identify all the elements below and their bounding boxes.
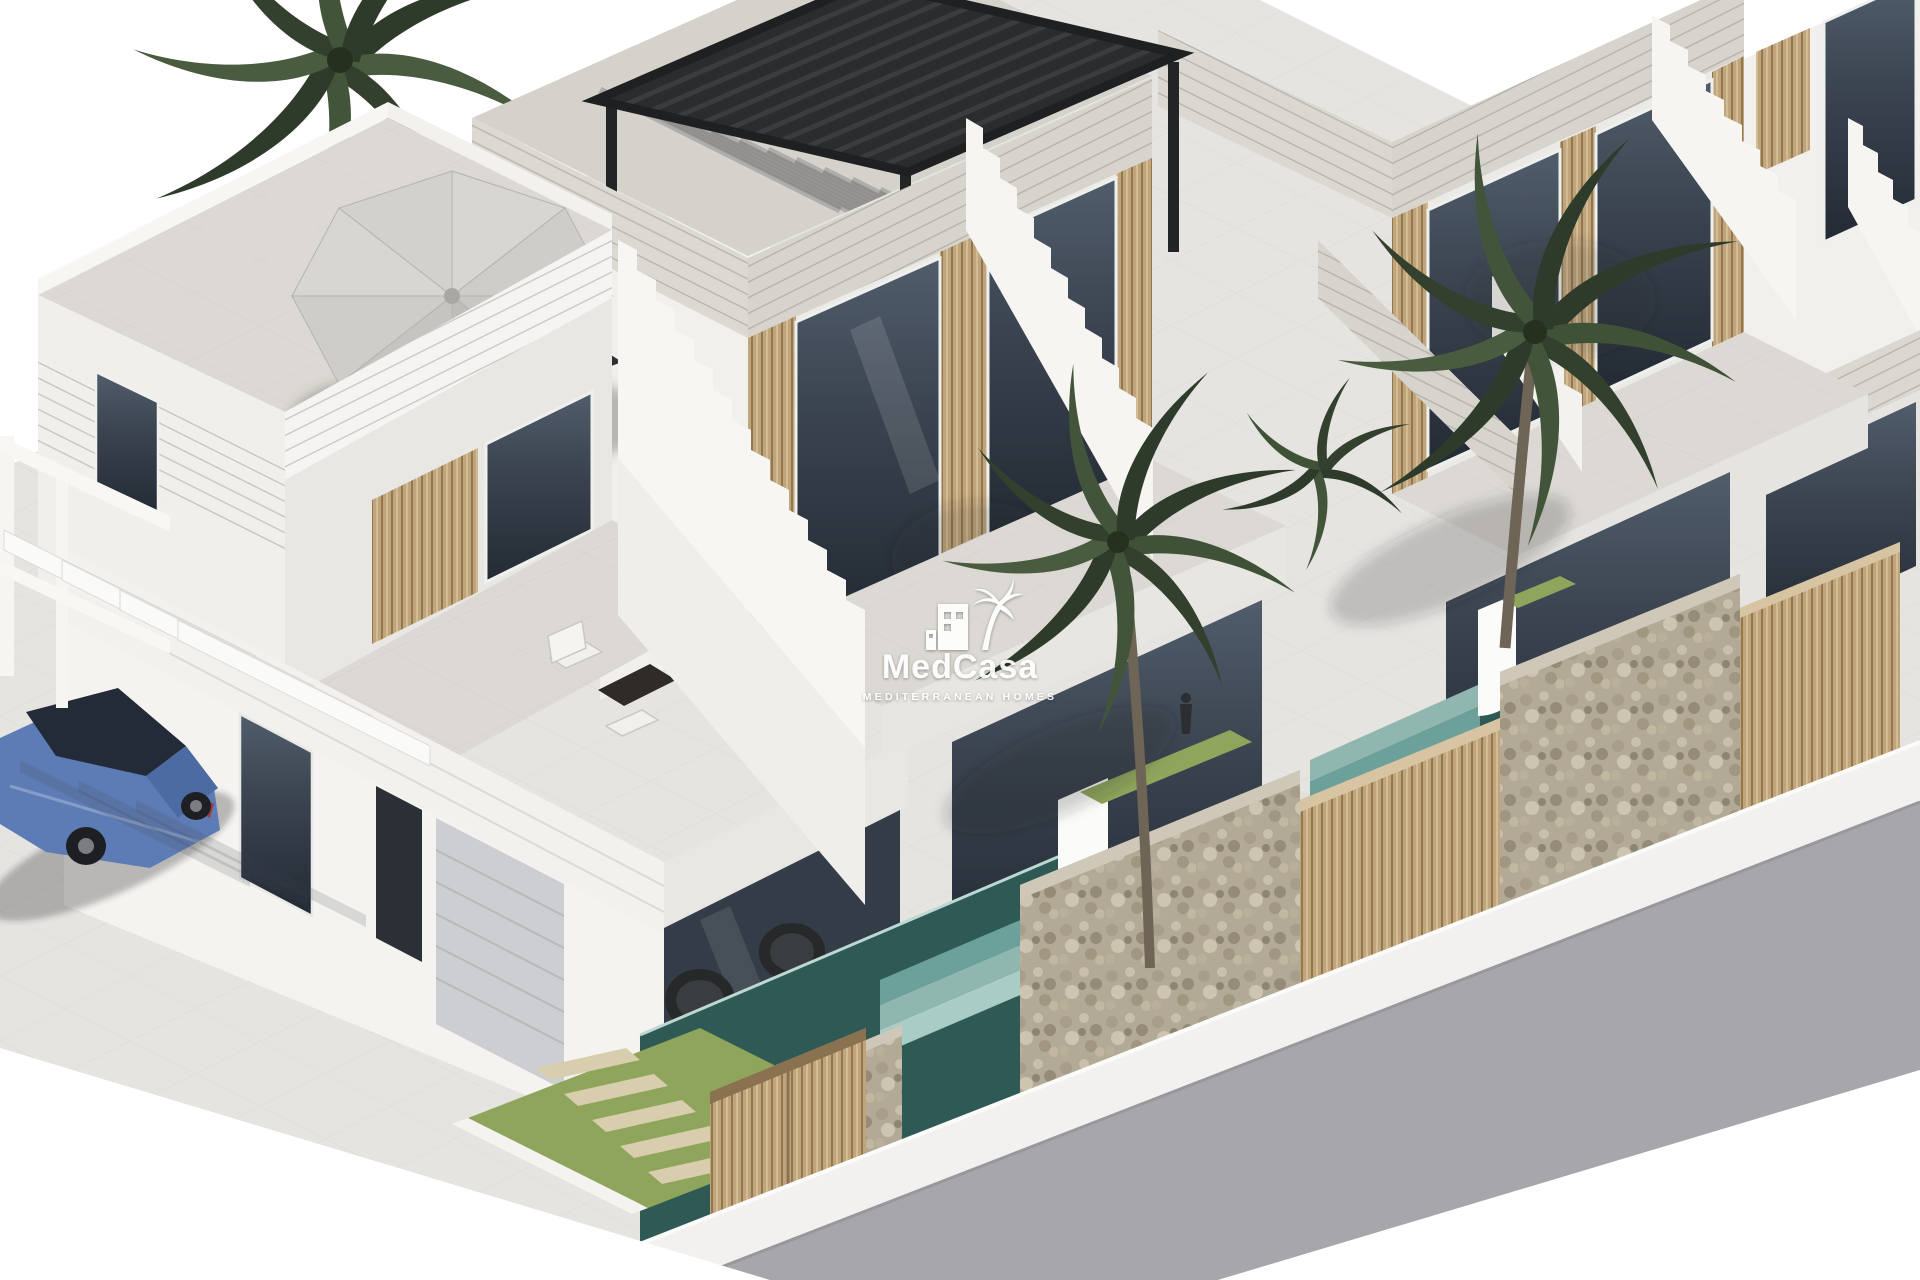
villa1-entry-door xyxy=(376,786,422,962)
person-silhouette xyxy=(1180,693,1192,734)
watermark-brand: MedCasa xyxy=(882,648,1038,686)
render-canvas: MedCasa MEDITERRANEAN HOMES xyxy=(0,0,1920,1280)
carport-post-1 xyxy=(0,436,14,676)
villa4-slat-panel xyxy=(1756,28,1810,174)
watermark-tagline: MEDITERRANEAN HOMES xyxy=(863,691,1057,703)
villa-4 xyxy=(1742,0,1920,636)
